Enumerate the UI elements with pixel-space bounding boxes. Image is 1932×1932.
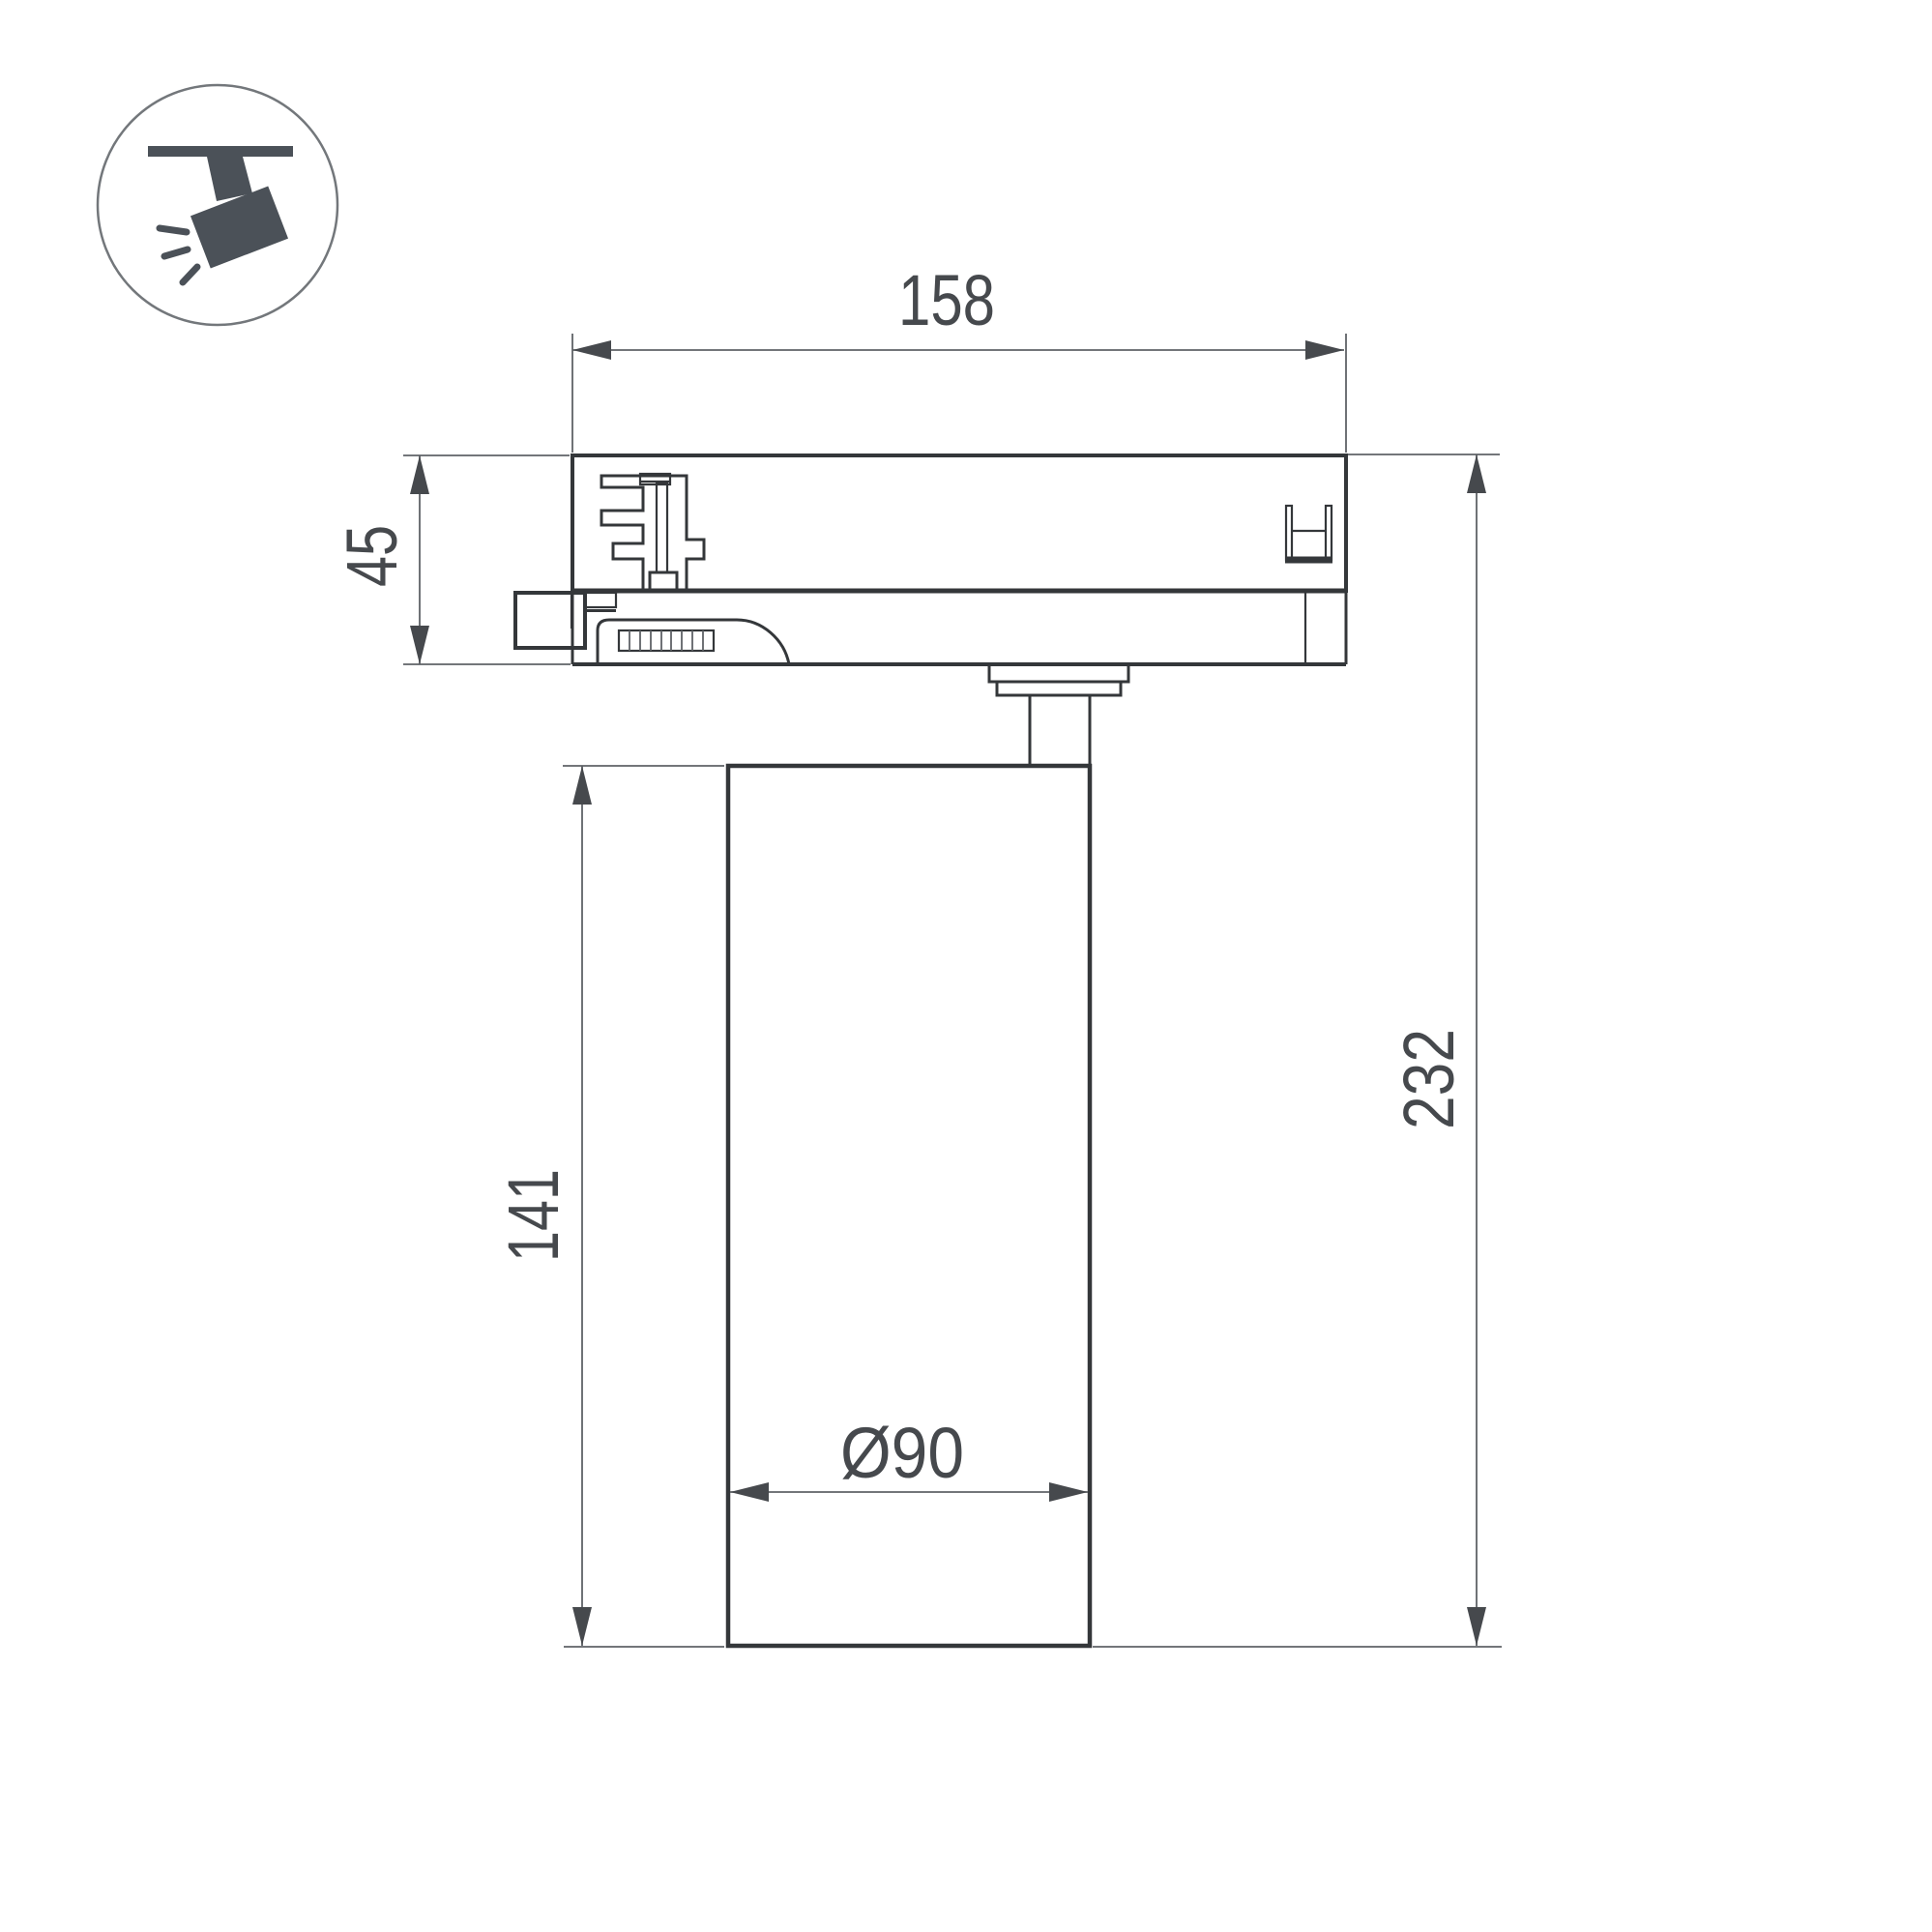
contact-screw-shaft bbox=[657, 483, 667, 572]
dimension-body-height: 141 bbox=[493, 766, 724, 1647]
spotlight-head-icon bbox=[190, 187, 288, 269]
lamp-body-cylinder bbox=[728, 766, 1090, 1646]
clip-left-wall bbox=[1286, 506, 1292, 560]
clip-right-wall bbox=[1326, 506, 1332, 560]
light-ray-icon bbox=[164, 249, 188, 256]
badge-circle bbox=[98, 85, 337, 325]
arrowhead bbox=[1467, 454, 1486, 493]
track-adapter bbox=[515, 455, 1346, 664]
gear-housing bbox=[598, 620, 789, 664]
light-ray-icon bbox=[183, 267, 197, 282]
dimension-adapter-width: 158 bbox=[572, 260, 1346, 453]
adapter-upper-box bbox=[572, 455, 1346, 591]
retaining-clip bbox=[1285, 506, 1332, 560]
arrowhead bbox=[1467, 1607, 1486, 1646]
contact-foot bbox=[650, 572, 677, 591]
arrowhead bbox=[730, 1482, 769, 1502]
dimension-label-141: 141 bbox=[493, 1169, 573, 1262]
swivel-step-upper bbox=[989, 664, 1128, 682]
swivel-step-lower bbox=[997, 682, 1121, 695]
track-rail-icon bbox=[148, 146, 293, 157]
dimension-total-height: 232 bbox=[1093, 454, 1502, 1647]
dimension-label-diameter: Ø90 bbox=[840, 1413, 964, 1493]
technical-drawing: 158 45 141 232 Ø90 bbox=[0, 0, 1932, 1932]
arrowhead bbox=[572, 340, 611, 360]
dimension-label-232: 232 bbox=[1389, 1029, 1469, 1129]
drawing-canvas: 158 45 141 232 Ø90 bbox=[0, 0, 1932, 1932]
swivel-stem bbox=[1030, 695, 1090, 766]
arrowhead bbox=[1305, 340, 1344, 360]
track-spotlight-badge bbox=[98, 85, 337, 325]
dimension-label-45: 45 bbox=[332, 525, 412, 587]
grip-box bbox=[619, 630, 714, 651]
arrowhead bbox=[1049, 1482, 1088, 1502]
grip-ridges bbox=[619, 630, 714, 651]
arrowhead bbox=[410, 626, 429, 664]
light-ray-icon bbox=[160, 228, 187, 232]
arrowhead bbox=[572, 1607, 592, 1646]
dimension-label-158: 158 bbox=[898, 260, 995, 340]
arrowhead bbox=[410, 455, 429, 494]
icon-stem bbox=[207, 157, 252, 201]
arrowhead bbox=[572, 766, 592, 805]
swivel-joint bbox=[989, 664, 1128, 766]
dimension-body-diameter: Ø90 bbox=[730, 1413, 1088, 1502]
latch-block bbox=[585, 593, 616, 607]
locking-lever bbox=[515, 593, 585, 648]
dimension-adapter-height: 45 bbox=[332, 455, 571, 664]
